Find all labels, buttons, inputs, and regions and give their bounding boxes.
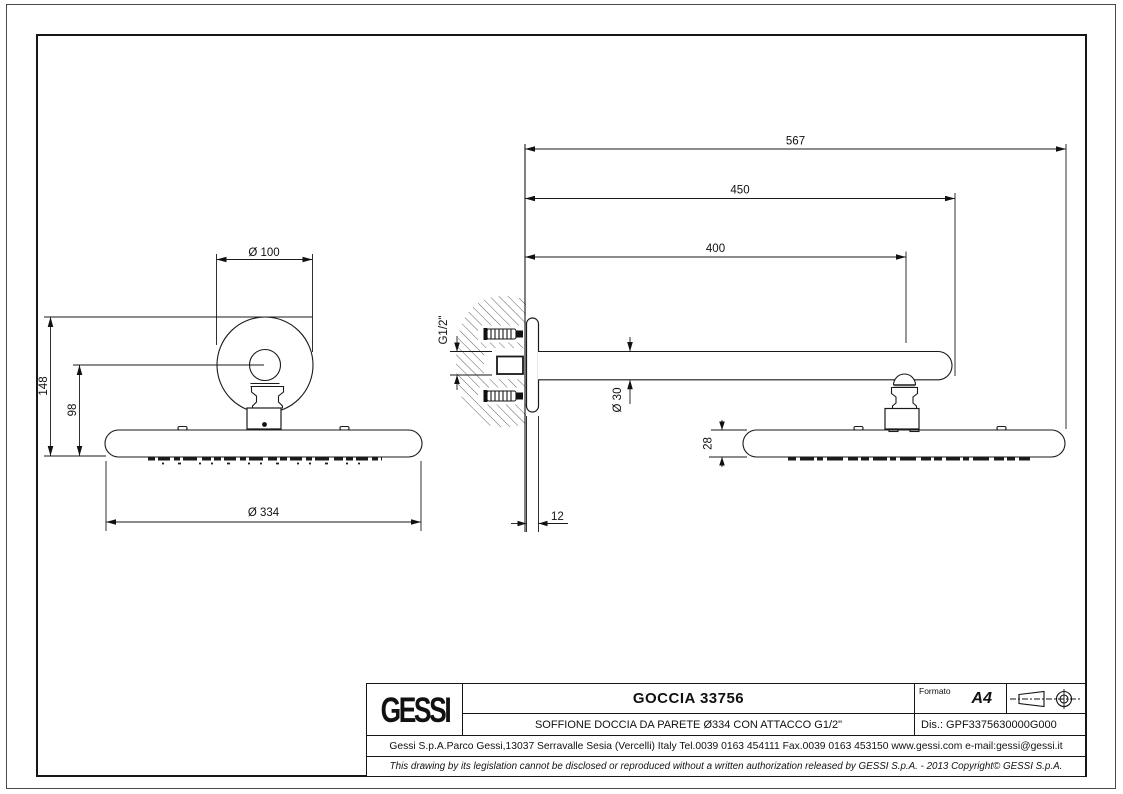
dim-label-center-height: 98 <box>67 404 79 417</box>
address-row: Gessi S.p.A.Parco Gessi,13037 Serravalle… <box>367 735 1085 756</box>
dim-label-head-diameter: Ø 334 <box>248 507 280 519</box>
dim-label-plate-thickness: 12 <box>551 511 564 523</box>
title-cell: GOCCIA 33756 SOFFIONE DOCCIA DA PARETE Ø… <box>463 684 915 735</box>
front-joint-neck <box>252 387 284 409</box>
side-ball-joint <box>885 374 919 432</box>
drawing-title: GOCCIA 33756 <box>633 690 744 707</box>
side-view-dimensions <box>450 144 1066 532</box>
drawing-number: Dis.: GPF3375630000G000 <box>921 719 1057 731</box>
dim-label-arm-diameter: Ø 30 <box>612 388 624 413</box>
title-block-right-column: Formato A4 Dis.: GPF337563 <box>915 684 1085 735</box>
first-angle-projection-icon <box>1008 685 1084 713</box>
dim-label-arm-length: 450 <box>730 185 749 197</box>
dim-label-length-to-center: 400 <box>706 243 725 255</box>
technical-drawing-svg: Ø 100 148 98 Ø 334 <box>0 0 1123 794</box>
front-set-screw-dot <box>262 422 267 427</box>
disclaimer-row: This drawing by its legislation cannot b… <box>367 756 1085 776</box>
front-head-body <box>105 430 422 457</box>
shower-arm <box>538 352 952 380</box>
drawing-subtitle: SOFFIONE DOCCIA DA PARETE Ø334 CON ATTAC… <box>535 719 842 731</box>
copyright-disclaimer: This drawing by its legislation cannot b… <box>390 761 1063 772</box>
projection-symbol-cell <box>1007 684 1085 713</box>
formato-label: Formato <box>919 686 951 696</box>
dim-label-head-thickness: 28 <box>703 437 715 450</box>
front-view-dimensions <box>44 254 421 531</box>
drawing-sheet: Ø 100 148 98 Ø 334 <box>0 0 1123 794</box>
wall-plate <box>527 318 539 412</box>
formato-cell: Formato A4 <box>915 684 1007 713</box>
dim-label-total-height: 148 <box>38 376 50 395</box>
side-view <box>456 144 1065 532</box>
front-view <box>105 317 422 464</box>
logo-cell: GESSI <box>367 684 463 735</box>
dim-label-flange-diameter: Ø 100 <box>248 247 279 259</box>
company-address: Gessi S.p.A.Parco Gessi,13037 Serravalle… <box>389 741 1062 752</box>
formato-value: A4 <box>972 690 992 708</box>
side-head-body <box>743 430 1065 457</box>
dim-label-thread-size: G1/2" <box>438 315 450 344</box>
thread-connection-block <box>497 357 523 375</box>
dim-label-overall-length: 567 <box>786 136 805 148</box>
drawing-number-cell: Dis.: GPF3375630000G000 <box>915 714 1085 735</box>
title-block: GESSI GOCCIA 33756 SOFFIONE DOCCIA DA PA… <box>366 683 1085 776</box>
gessi-logo: GESSI <box>380 689 449 730</box>
